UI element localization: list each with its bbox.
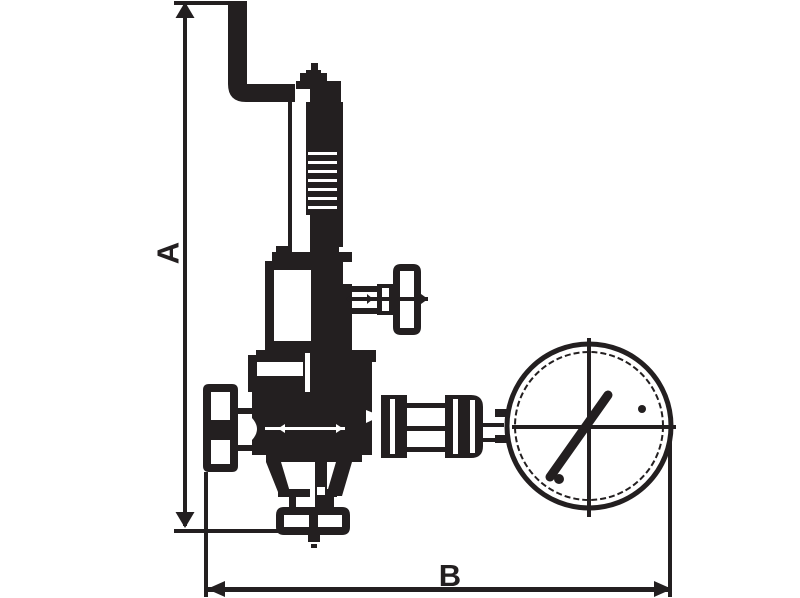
- svg-text:B: B: [439, 558, 461, 593]
- svg-text:A: A: [151, 242, 186, 264]
